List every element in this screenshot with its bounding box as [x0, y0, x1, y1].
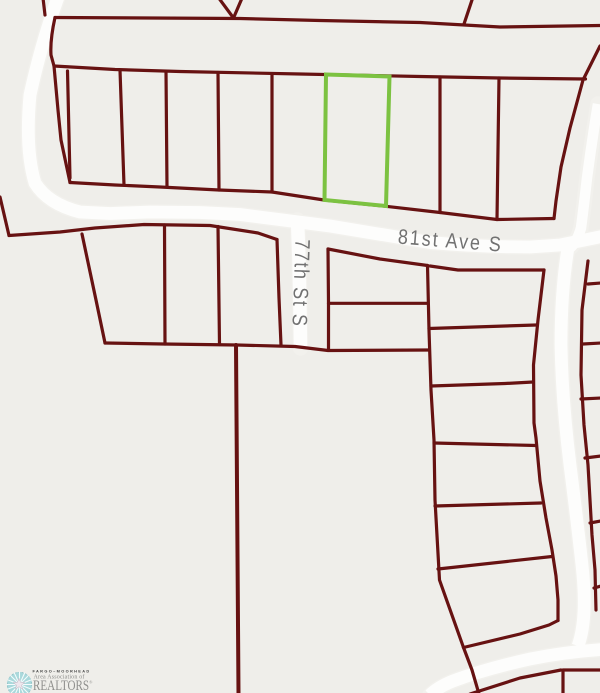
svg-text:FARGO–MOORHEAD: FARGO–MOORHEAD [33, 668, 91, 673]
svg-text:®: ® [89, 680, 93, 685]
svg-text:REALTORS: REALTORS [33, 676, 89, 693]
svg-text:77th St S: 77th St S [287, 239, 314, 328]
